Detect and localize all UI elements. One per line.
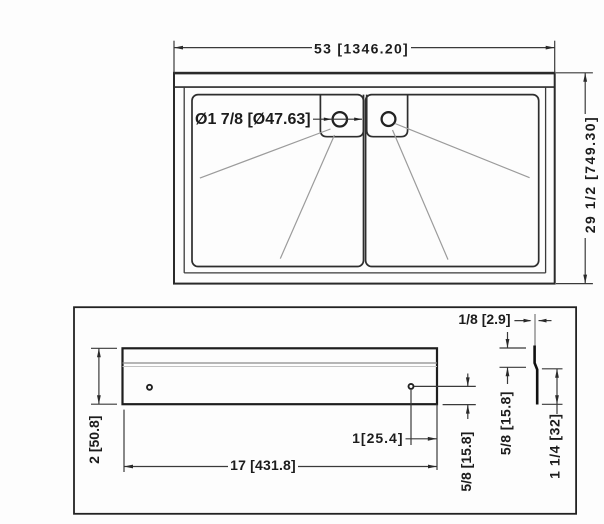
svg-text:2 [50.8]: 2 [50.8] xyxy=(86,416,102,464)
svg-text:5/8 [15.8]: 5/8 [15.8] xyxy=(497,391,513,455)
svg-text:29 1/2 [749.30]: 29 1/2 [749.30] xyxy=(582,116,598,233)
svg-text:53 [1346.20]: 53 [1346.20] xyxy=(314,40,409,56)
svg-text:1[25.4]: 1[25.4] xyxy=(352,430,403,446)
svg-text:5/8 [15.8]: 5/8 [15.8] xyxy=(458,432,474,492)
svg-text:Ø1 7/8 [Ø47.63]: Ø1 7/8 [Ø47.63] xyxy=(195,111,311,128)
svg-text:17 [431.8]: 17 [431.8] xyxy=(230,457,296,473)
svg-text:1/8 [2.9]: 1/8 [2.9] xyxy=(458,311,510,327)
svg-text:1 1/4 [32]: 1 1/4 [32] xyxy=(547,413,563,478)
